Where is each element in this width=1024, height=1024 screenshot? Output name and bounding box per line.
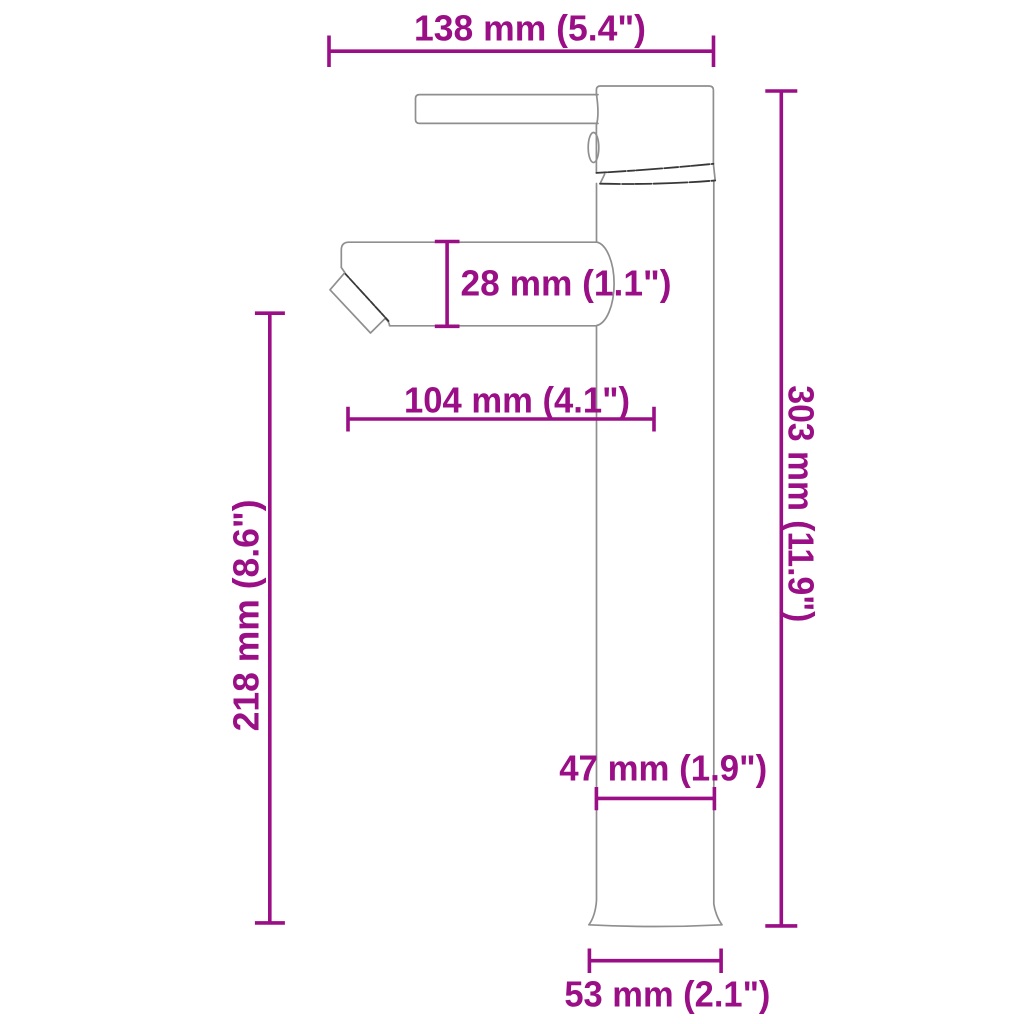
svg-text:28 mm (1.1"): 28 mm (1.1") <box>461 262 672 303</box>
svg-text:303 mm (11.9"): 303 mm (11.9") <box>780 385 821 622</box>
svg-text:104 mm (4.1"): 104 mm (4.1") <box>404 380 630 421</box>
svg-text:138 mm (5.4"): 138 mm (5.4") <box>414 8 646 49</box>
svg-text:53 mm (2.1"): 53 mm (2.1") <box>564 974 770 1015</box>
svg-text:47 mm (1.9"): 47 mm (1.9") <box>559 748 767 789</box>
svg-text:218 mm (8.6"): 218 mm (8.6") <box>226 499 267 731</box>
